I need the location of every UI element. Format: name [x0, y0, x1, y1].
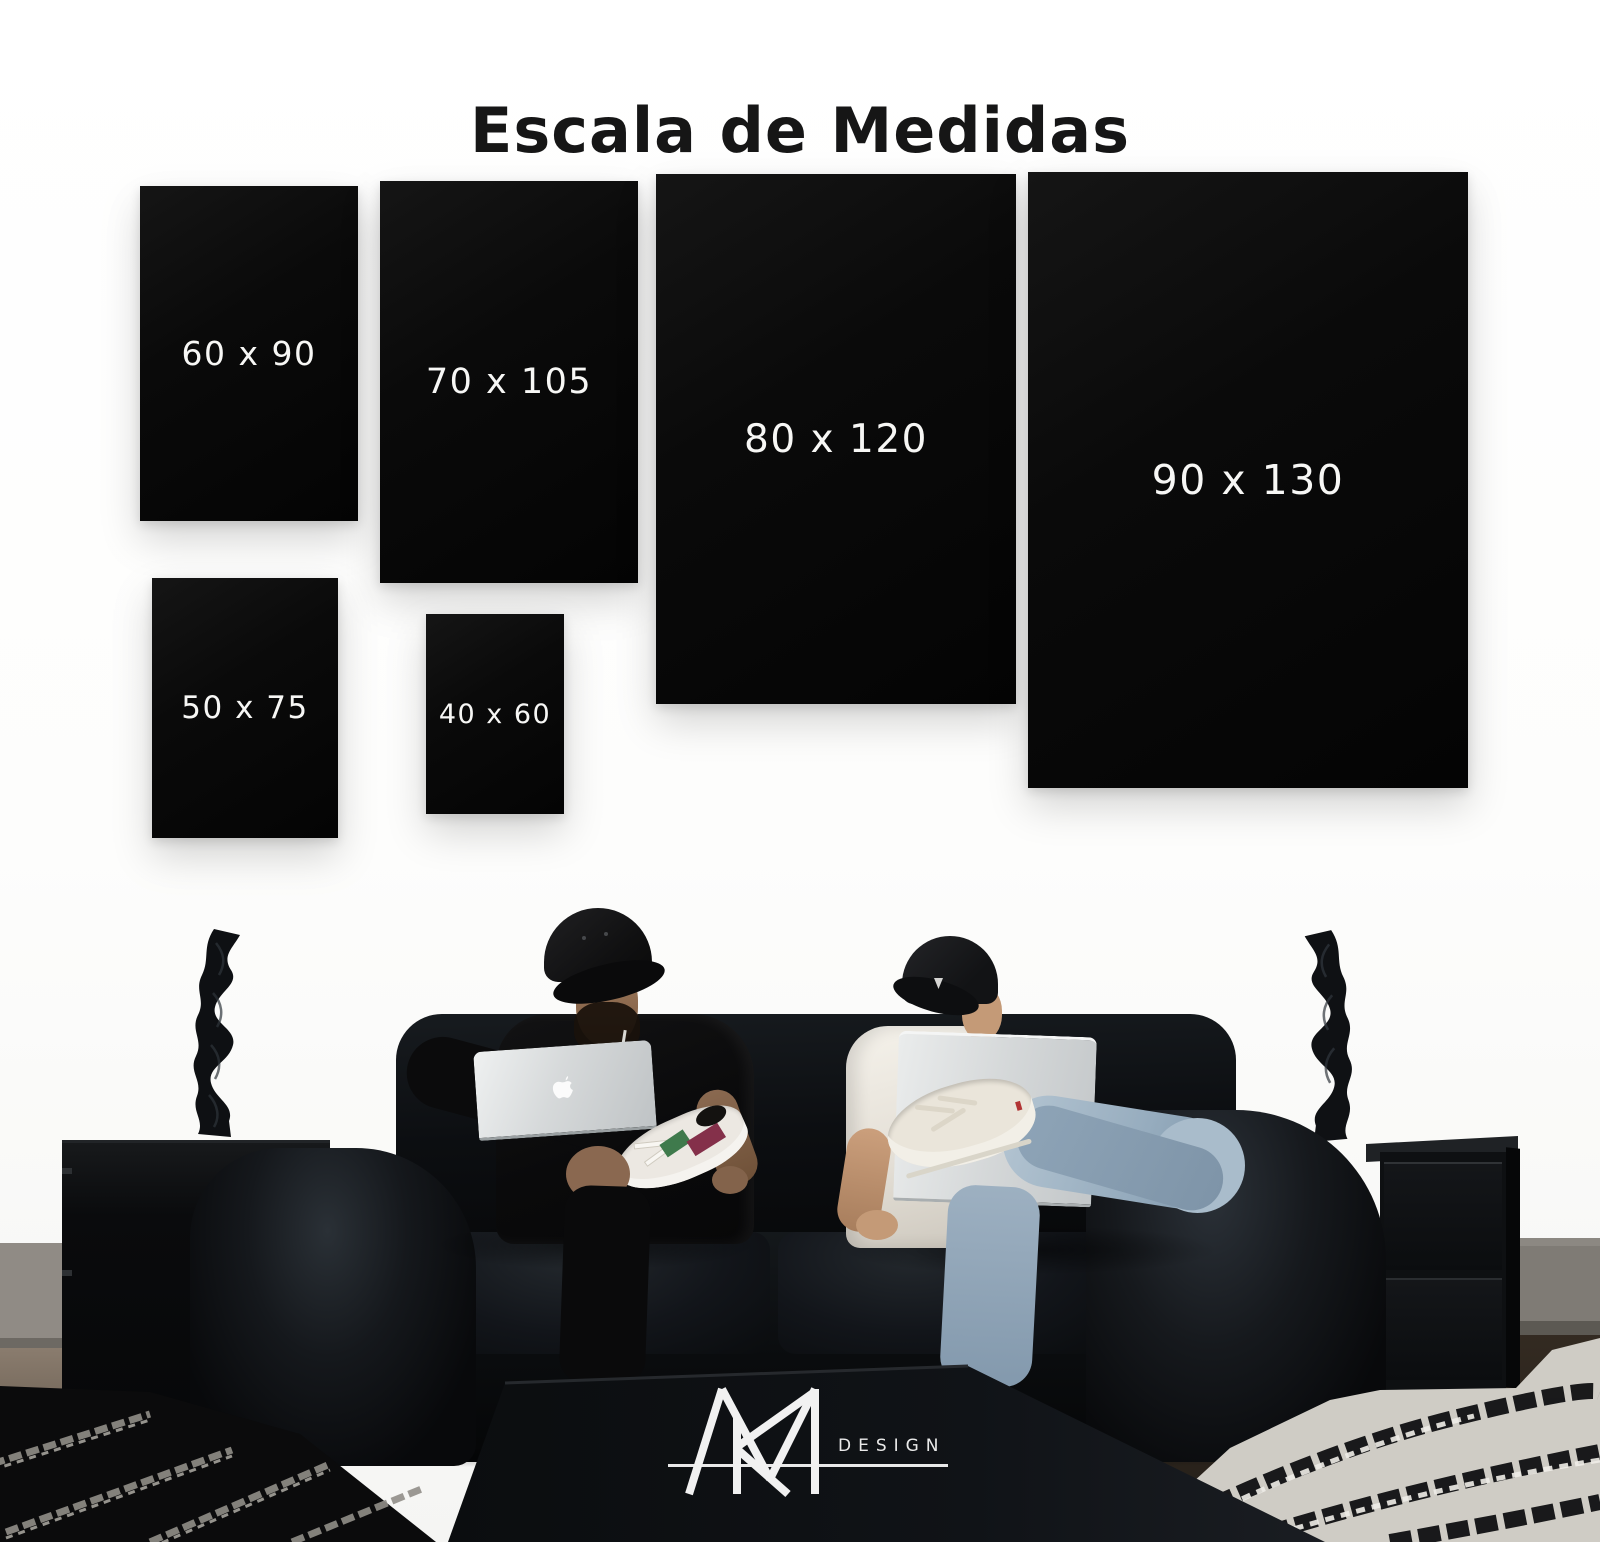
- poster-size-scale-image: Escala de Medidas 60 x 90 70 x 105 80 x …: [0, 0, 1600, 1542]
- brand-wordmark: DESIGN: [838, 1436, 946, 1456]
- brand-monogram-icon: [0, 0, 1600, 1542]
